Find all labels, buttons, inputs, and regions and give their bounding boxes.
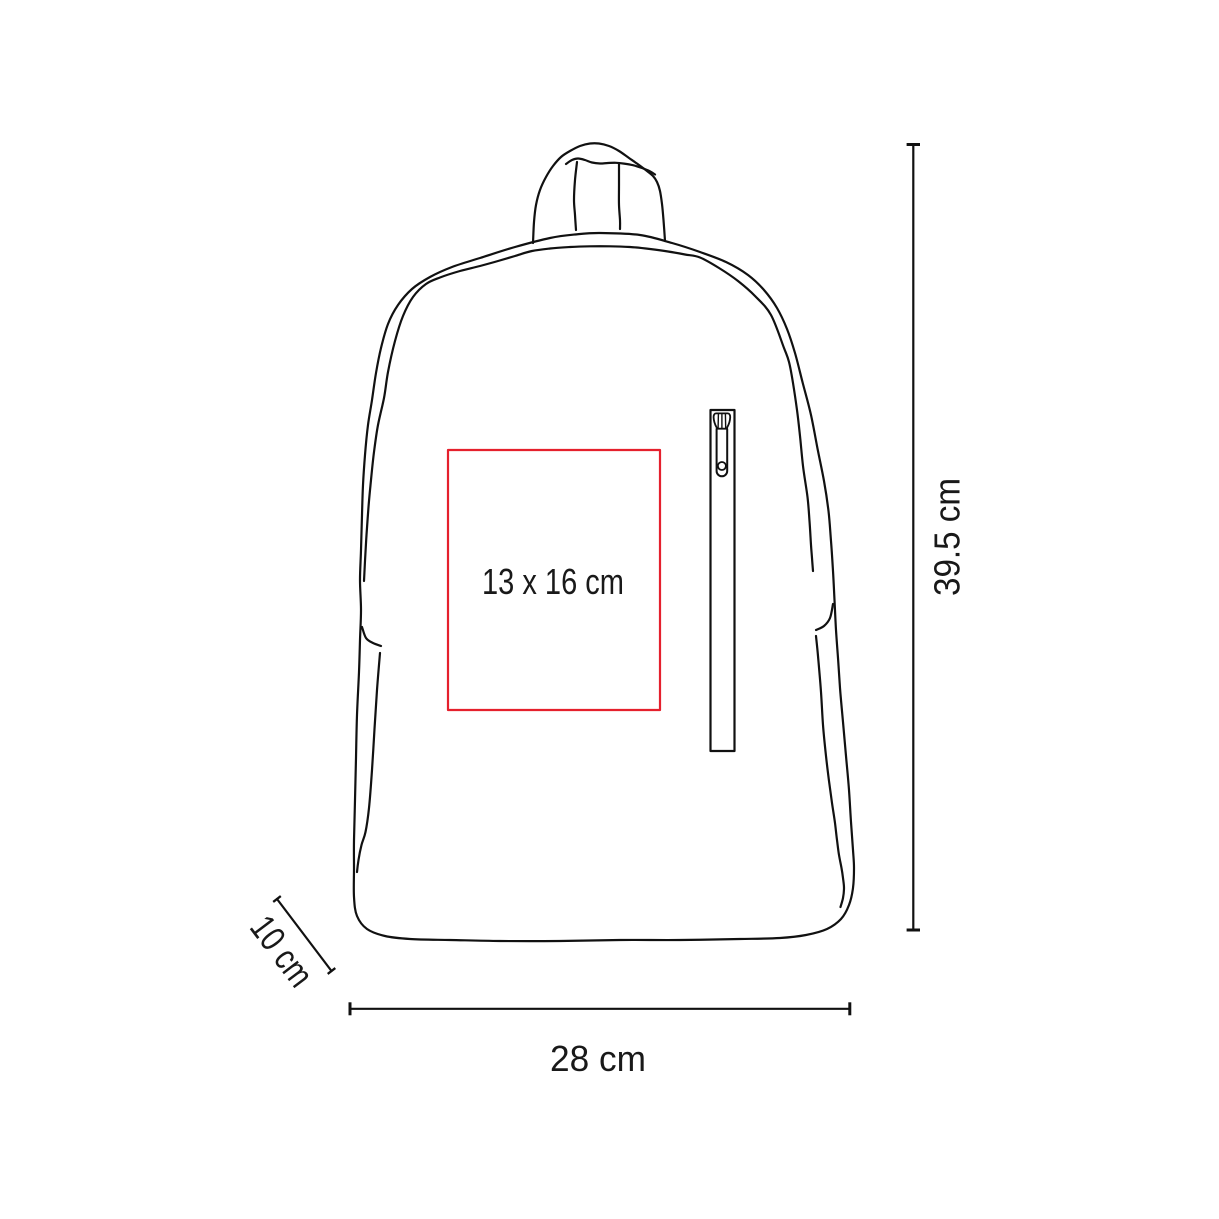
svg-text:13 x 16 cm: 13 x 16 cm xyxy=(482,561,624,602)
svg-text:10 cm: 10 cm xyxy=(242,908,322,995)
svg-text:39.5 cm: 39.5 cm xyxy=(927,478,968,596)
svg-text:28 cm: 28 cm xyxy=(550,1038,646,1079)
